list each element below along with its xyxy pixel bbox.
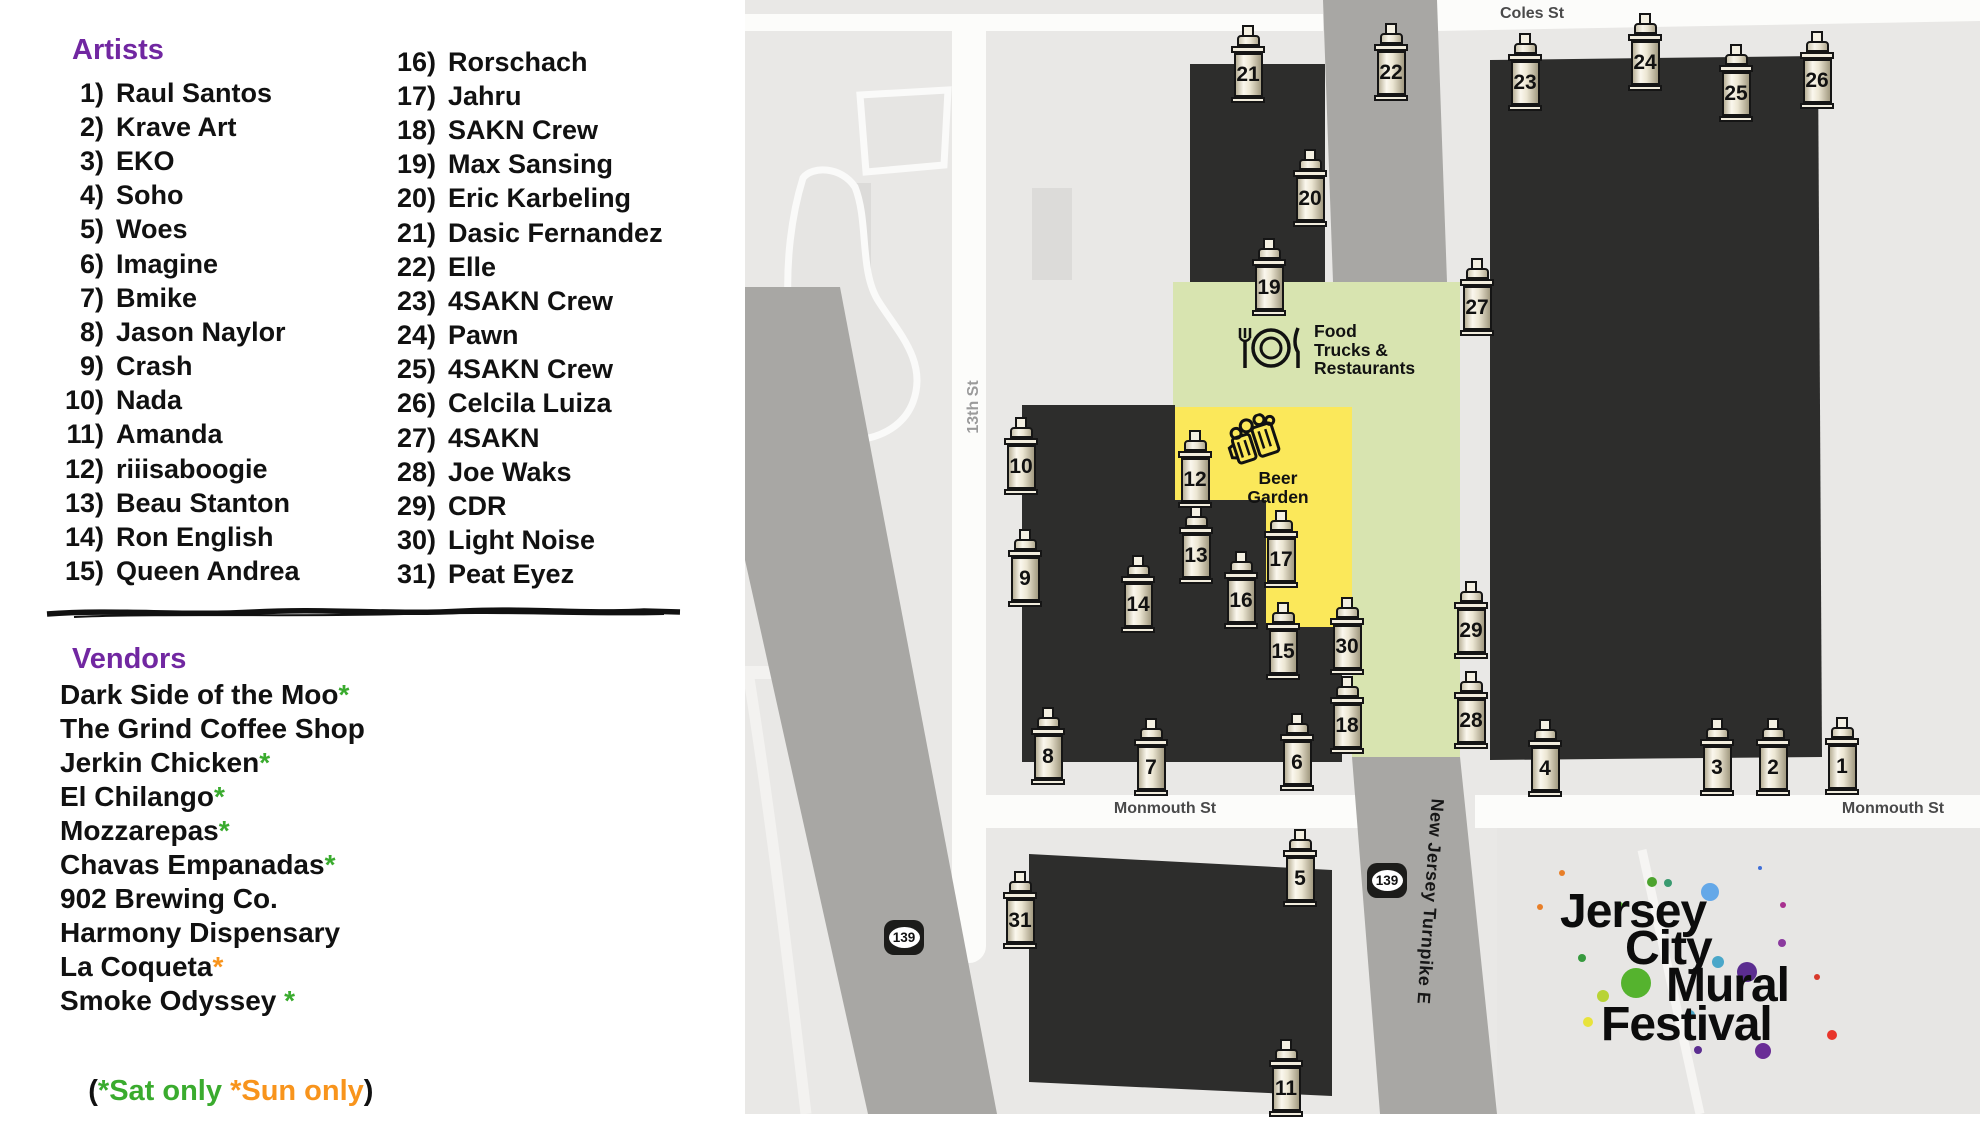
- spray-can-cap-icon: [1272, 612, 1295, 623]
- spray-can-number: 3: [1711, 756, 1723, 780]
- 13th-st-label: 13th St: [965, 347, 983, 467]
- spray-can-nozzle-icon: [1304, 149, 1316, 159]
- artist-number: 22): [378, 252, 448, 283]
- artist-name: Celcila Luiza: [448, 388, 612, 419]
- artist-name: Ron English: [116, 522, 274, 553]
- spray-can-nozzle-icon: [1014, 871, 1026, 881]
- spray-can-marker[interactable]: 28: [1452, 671, 1490, 749]
- spray-can-nozzle-icon: [1291, 713, 1303, 723]
- spray-can-rim-icon: [1330, 618, 1364, 625]
- artist-list-item: 15)Queen Andrea: [46, 555, 300, 589]
- spray-can-body: 20: [1296, 177, 1325, 221]
- route-139-badge-number: 139: [1372, 870, 1403, 891]
- artist-number: 26): [378, 388, 448, 419]
- vendor-name: El Chilango: [60, 781, 214, 813]
- artist-list-item: 28)Joe Waks: [378, 455, 663, 489]
- artist-number: 27): [378, 423, 448, 454]
- spray-can-cap-icon: [1460, 681, 1483, 692]
- spray-can-base-icon: [1031, 779, 1065, 785]
- artist-list-item: 27)4SAKN: [378, 421, 663, 455]
- artist-list-item: 6)Imagine: [46, 247, 300, 281]
- spray-can-number: 4: [1539, 757, 1551, 781]
- artist-name: Bmike: [116, 283, 197, 314]
- spray-can-body: 13: [1182, 534, 1211, 578]
- artist-number: 3): [46, 146, 116, 177]
- artist-list-item: 12)riiisaboogie: [46, 452, 300, 486]
- spray-can-base-icon: [1224, 623, 1258, 629]
- vendor-list-item: Smoke Odyssey *: [60, 984, 365, 1018]
- spray-can-rim-icon: [1800, 52, 1834, 59]
- spray-can-base-icon: [1330, 669, 1364, 675]
- divider-line: [44, 604, 684, 622]
- spray-can-marker[interactable]: 16: [1222, 551, 1260, 629]
- spray-can-cap-icon: [1185, 516, 1208, 527]
- spray-can-body: 5: [1286, 857, 1315, 901]
- spray-can-body: 9: [1011, 557, 1040, 601]
- spray-can-rim-icon: [1528, 740, 1562, 747]
- spray-can-marker[interactable]: 17: [1262, 510, 1300, 588]
- spray-can-base-icon: [1264, 582, 1298, 588]
- spray-can-cap-icon: [1286, 723, 1309, 734]
- spray-can-body: 26: [1803, 59, 1832, 103]
- artist-number: 30): [378, 525, 448, 556]
- vendor-name: La Coqueta: [60, 951, 212, 983]
- spray-can-body: 31: [1006, 899, 1035, 943]
- vendor-list-item: 902 Brewing Co.: [60, 882, 365, 916]
- spray-can-marker[interactable]: 20: [1291, 149, 1329, 227]
- vendor-name: Chavas Empanadas: [60, 849, 325, 881]
- spray-can-nozzle-icon: [1132, 555, 1144, 565]
- artist-list-item: 14)Ron English: [46, 520, 300, 554]
- artist-name: Rorschach: [448, 47, 588, 78]
- spray-can-base-icon: [1269, 1111, 1303, 1117]
- beer-garden-label-group: Beer Garden: [1226, 416, 1330, 506]
- vendor-list-item: El Chilango*: [60, 780, 365, 814]
- spray-can-body: 12: [1181, 458, 1210, 502]
- spray-can-rim-icon: [1330, 697, 1364, 704]
- spray-can-body: 27: [1463, 286, 1492, 330]
- artist-number: 1): [46, 78, 116, 109]
- spray-can-base-icon: [1003, 943, 1037, 949]
- artist-name: Soho: [116, 180, 184, 211]
- spray-can-marker[interactable]: 13: [1177, 506, 1215, 584]
- monmouth-st-label-east: Monmouth St: [1813, 800, 1973, 818]
- spray-can-nozzle-icon: [1015, 417, 1027, 427]
- spray-can-cap-icon: [1514, 43, 1537, 54]
- artist-number: 20): [378, 183, 448, 214]
- artist-list-item: 3)EKO: [46, 144, 300, 178]
- artist-name: Queen Andrea: [116, 556, 300, 587]
- spray-can-marker[interactable]: 2: [1754, 718, 1792, 796]
- spray-can-body: 25: [1722, 72, 1751, 116]
- spray-can-nozzle-icon: [1294, 829, 1306, 839]
- spray-can-nozzle-icon: [1145, 718, 1157, 728]
- artist-name: Nada: [116, 385, 182, 416]
- spray-can-nozzle-icon: [1711, 718, 1723, 728]
- schedule-note: (*Sat only *Sun only): [56, 1042, 373, 1141]
- artist-name: Light Noise: [448, 525, 595, 556]
- artist-list-item: 29)CDR: [378, 489, 663, 523]
- paint-splatter-dot: [1537, 904, 1543, 910]
- vendor-list-item: Jerkin Chicken*: [60, 746, 365, 780]
- spray-can-number: 19: [1257, 276, 1280, 300]
- artist-name: Beau Stanton: [116, 488, 290, 519]
- monmouth-st-label-west: Monmouth St: [1085, 800, 1245, 818]
- spray-can-body: 18: [1333, 704, 1362, 748]
- artist-name: Crash: [116, 351, 193, 382]
- spray-can-base-icon: [1454, 743, 1488, 749]
- spray-can-nozzle-icon: [1341, 676, 1353, 686]
- spray-can-number: 14: [1126, 593, 1149, 617]
- spray-can-rim-icon: [1283, 850, 1317, 857]
- spray-can-nozzle-icon: [1275, 510, 1287, 520]
- spray-can-nozzle-icon: [1767, 718, 1779, 728]
- spray-can-marker[interactable]: 10: [1002, 417, 1040, 495]
- spray-can-number: 17: [1269, 548, 1292, 572]
- spray-can-base-icon: [1719, 116, 1753, 122]
- spray-can-marker[interactable]: 23: [1506, 33, 1544, 111]
- spray-can-marker[interactable]: 22: [1372, 23, 1410, 101]
- artist-number: 8): [46, 317, 116, 348]
- spray-can-marker[interactable]: 27: [1458, 258, 1496, 336]
- artist-name: Eric Karbeling: [448, 183, 631, 214]
- vendor-name: 902 Brewing Co.: [60, 883, 278, 915]
- spray-can-base-icon: [1008, 601, 1042, 607]
- artist-number: 15): [46, 556, 116, 587]
- paint-splatter-dot: [1758, 866, 1762, 870]
- artist-number: 17): [378, 81, 448, 112]
- vendor-day-asterisk: *: [284, 985, 295, 1017]
- artist-name: SAKN Crew: [448, 115, 598, 146]
- paint-splatter-dot: [1780, 902, 1786, 908]
- vendor-day-asterisk: *: [259, 747, 270, 779]
- spray-can-number: 13: [1184, 544, 1207, 568]
- spray-can-number: 31: [1008, 909, 1031, 933]
- spray-can-rim-icon: [1454, 692, 1488, 699]
- spray-can-marker[interactable]: 1: [1823, 717, 1861, 795]
- spray-can-cap-icon: [1706, 728, 1729, 739]
- spray-can-cap-icon: [1460, 591, 1483, 602]
- vendors-heading: Vendors: [72, 643, 186, 676]
- spray-can-rim-icon: [1003, 892, 1037, 899]
- vendor-list-item: Mozzarepas*: [60, 814, 365, 848]
- spray-can-marker[interactable]: 18: [1328, 676, 1366, 754]
- spray-can-base-icon: [1508, 105, 1542, 111]
- artist-list-item: 19)Max Sansing: [378, 148, 663, 182]
- paint-splatter-dot: [1778, 939, 1786, 947]
- spray-can-marker[interactable]: 31: [1001, 871, 1039, 949]
- spray-can-body: 2: [1759, 746, 1788, 790]
- artist-number: 21): [378, 218, 448, 249]
- artist-name: CDR: [448, 491, 507, 522]
- artists-heading: Artists: [72, 34, 164, 67]
- artist-number: 18): [378, 115, 448, 146]
- spray-can-nozzle-icon: [1263, 238, 1275, 248]
- spray-can-rim-icon: [1178, 451, 1212, 458]
- artist-name: Peat Eyez: [448, 559, 574, 590]
- spray-can-cap-icon: [1534, 729, 1557, 740]
- spray-can-base-icon: [1528, 791, 1562, 797]
- spray-can-cap-icon: [1184, 440, 1207, 451]
- spray-can-rim-icon: [1266, 623, 1300, 630]
- spray-can-base-icon: [1231, 97, 1265, 103]
- spray-can-cap-icon: [1014, 539, 1037, 550]
- spray-can-number: 20: [1298, 187, 1321, 211]
- spray-can-nozzle-icon: [1465, 581, 1477, 591]
- route-139-badge: 139: [884, 920, 924, 955]
- artist-list-item: 8)Jason Naylor: [46, 315, 300, 349]
- paint-splatter-dot: [1578, 954, 1586, 962]
- sun-only-note: *Sun only: [230, 1075, 364, 1107]
- spray-can-nozzle-icon: [1235, 551, 1247, 561]
- vendor-list-item: Dark Side of the Moo*: [60, 678, 365, 712]
- spray-can-nozzle-icon: [1465, 671, 1477, 681]
- artist-name: 4SAKN: [448, 423, 540, 454]
- spray-can-cap-icon: [1762, 728, 1785, 739]
- vendor-day-asterisk: *: [325, 849, 336, 881]
- vendor-day-asterisk: *: [214, 781, 225, 813]
- artist-number: 14): [46, 522, 116, 553]
- spray-can-rim-icon: [1628, 34, 1662, 41]
- logo-line: Festival: [1601, 997, 1772, 1052]
- artist-number: 11): [46, 419, 116, 450]
- artist-list-item: 17)Jahru: [378, 79, 663, 113]
- paint-splatter-dot: [1583, 1017, 1593, 1027]
- spray-can-nozzle-icon: [1242, 25, 1254, 35]
- spray-can-cap-icon: [1237, 35, 1260, 46]
- artist-number: 19): [378, 149, 448, 180]
- spray-can-base-icon: [1628, 85, 1662, 91]
- spray-can-nozzle-icon: [1341, 597, 1353, 607]
- artists-list-col1: 1)Raul Santos2)Krave Art3)EKO4)Soho5)Woe…: [46, 76, 300, 589]
- spray-can-body: 14: [1124, 583, 1153, 627]
- artist-number: 31): [378, 559, 448, 590]
- artist-list-item: 1)Raul Santos: [46, 76, 300, 110]
- spray-can-body: 21: [1234, 53, 1263, 97]
- route-139-badge: 139: [1367, 863, 1407, 898]
- spray-can-cap-icon: [1127, 565, 1150, 576]
- paint-splatter-dot: [1559, 870, 1565, 876]
- spray-can-marker[interactable]: 21: [1229, 25, 1267, 103]
- spray-can-rim-icon: [1508, 54, 1542, 61]
- vendors-list: Dark Side of the Moo*The Grind Coffee Sh…: [60, 678, 365, 1018]
- artist-number: 9): [46, 351, 116, 382]
- artist-name: Jason Naylor: [116, 317, 286, 348]
- spray-can-body: 23: [1511, 61, 1540, 105]
- spray-can-base-icon: [1460, 330, 1494, 336]
- spray-can-nozzle-icon: [1280, 1039, 1292, 1049]
- spray-can-cap-icon: [1466, 268, 1489, 279]
- spray-can-marker[interactable]: 3: [1698, 718, 1736, 796]
- spray-can-nozzle-icon: [1019, 529, 1031, 539]
- artist-list-item: 7)Bmike: [46, 281, 300, 315]
- vendor-name: Smoke Odyssey: [60, 985, 284, 1017]
- spray-can-marker[interactable]: 8: [1029, 707, 1067, 785]
- spray-can-nozzle-icon: [1836, 717, 1848, 727]
- spray-can-rim-icon: [1231, 46, 1265, 53]
- spray-can-body: 11: [1272, 1067, 1301, 1111]
- spray-can-body: 16: [1227, 579, 1256, 623]
- spray-can-marker[interactable]: 26: [1798, 31, 1836, 109]
- spray-can-body: 8: [1034, 735, 1063, 779]
- spray-can-body: 1: [1828, 745, 1857, 789]
- vendor-list-item: La Coqueta*: [60, 950, 365, 984]
- spray-can-rim-icon: [1719, 65, 1753, 72]
- artist-number: 13): [46, 488, 116, 519]
- spray-can-base-icon: [1825, 789, 1859, 795]
- artist-number: 28): [378, 457, 448, 488]
- artist-name: EKO: [116, 146, 175, 177]
- vendor-name: The Grind Coffee Shop: [60, 713, 365, 745]
- spray-can-cap-icon: [1289, 839, 1312, 850]
- artist-name: Max Sansing: [448, 149, 613, 180]
- vendor-day-asterisk: *: [338, 679, 349, 711]
- spray-can-rim-icon: [1008, 550, 1042, 557]
- spray-can-number: 1: [1836, 755, 1848, 779]
- artist-list-item: 4)Soho: [46, 179, 300, 213]
- spray-can-number: 23: [1513, 71, 1536, 95]
- artist-number: 12): [46, 454, 116, 485]
- spray-can-marker[interactable]: 9: [1006, 529, 1044, 607]
- spray-can-nozzle-icon: [1189, 430, 1201, 440]
- artist-name: Imagine: [116, 249, 218, 280]
- artist-number: 10): [46, 385, 116, 416]
- spray-can-rim-icon: [1224, 572, 1258, 579]
- spray-can-marker[interactable]: 30: [1328, 597, 1366, 675]
- vendor-list-item: Chavas Empanadas*: [60, 848, 365, 882]
- spray-can-body: 6: [1283, 741, 1312, 785]
- spray-can-marker[interactable]: 15: [1264, 602, 1302, 680]
- spray-can-rim-icon: [1134, 739, 1168, 746]
- artist-name: Woes: [116, 214, 188, 245]
- artist-list-item: 13)Beau Stanton: [46, 486, 300, 520]
- spray-can-number: 12: [1183, 468, 1206, 492]
- artist-number: 7): [46, 283, 116, 314]
- spray-can-cap-icon: [1258, 248, 1281, 259]
- artist-list-item: 10)Nada: [46, 384, 300, 418]
- spray-can-cap-icon: [1010, 427, 1033, 438]
- spray-can-rim-icon: [1460, 279, 1494, 286]
- spray-can-body: 24: [1631, 41, 1660, 85]
- artist-number: 6): [46, 249, 116, 280]
- vendor-name: Harmony Dispensary: [60, 917, 340, 949]
- spray-can-base-icon: [1134, 790, 1168, 796]
- spray-can-base-icon: [1330, 748, 1364, 754]
- artist-name: Jahru: [448, 81, 522, 112]
- spray-can-body: 19: [1255, 266, 1284, 310]
- spray-can-number: 8: [1042, 745, 1054, 769]
- spray-can-rim-icon: [1454, 602, 1488, 609]
- spray-can-nozzle-icon: [1042, 707, 1054, 717]
- spray-can-cap-icon: [1634, 23, 1657, 34]
- spray-can-number: 16: [1229, 589, 1252, 613]
- food-trucks-label-group: Food Trucks & Restaurants: [1237, 322, 1415, 378]
- artist-name: 4SAKN Crew: [448, 354, 613, 385]
- sat-only-note: *Sat only: [98, 1075, 222, 1107]
- spray-can-rim-icon: [1280, 734, 1314, 741]
- artist-list-item: 23)4SAKN Crew: [378, 284, 663, 318]
- artist-number: 25): [378, 354, 448, 385]
- spray-can-number: 15: [1271, 640, 1294, 664]
- paint-splatter-dot: [1814, 974, 1820, 980]
- spray-can-marker[interactable]: 19: [1250, 238, 1288, 316]
- spray-can-marker[interactable]: 4: [1526, 719, 1564, 797]
- artist-number: 4): [46, 180, 116, 211]
- artist-list-item: 2)Krave Art: [46, 110, 300, 144]
- spray-can-base-icon: [1266, 674, 1300, 680]
- artist-list-item: 18)SAKN Crew: [378, 113, 663, 147]
- spray-can-marker[interactable]: 24: [1626, 13, 1664, 91]
- spray-can-base-icon: [1293, 221, 1327, 227]
- spray-can-number: 22: [1379, 61, 1402, 85]
- artist-list-item: 16)Rorschach: [378, 45, 663, 79]
- spray-can-rim-icon: [1004, 438, 1038, 445]
- spray-can-rim-icon: [1264, 531, 1298, 538]
- spray-can-marker[interactable]: 12: [1176, 430, 1214, 508]
- vendor-day-asterisk: *: [219, 815, 230, 847]
- spray-can-marker[interactable]: 7: [1132, 718, 1170, 796]
- spray-can-base-icon: [1700, 790, 1734, 796]
- coles-st-label: Coles St: [1500, 5, 1564, 23]
- spray-can-number: 11: [1275, 1077, 1297, 1101]
- spray-can-body: 4: [1531, 747, 1560, 791]
- spray-can-number: 21: [1236, 63, 1259, 87]
- spray-can-base-icon: [1800, 103, 1834, 109]
- vendor-day-asterisk: *: [212, 951, 223, 983]
- spray-can-cap-icon: [1380, 33, 1403, 44]
- artist-name: Raul Santos: [116, 78, 272, 109]
- spray-can-body: 10: [1007, 445, 1036, 489]
- spray-can-nozzle-icon: [1730, 44, 1742, 54]
- artist-number: 2): [46, 112, 116, 143]
- vendor-list-item: Harmony Dispensary: [60, 916, 365, 950]
- vendor-list-item: The Grind Coffee Shop: [60, 712, 365, 746]
- spray-can-cap-icon: [1230, 561, 1253, 572]
- spray-can-marker[interactable]: 6: [1278, 713, 1316, 791]
- spray-can-base-icon: [1283, 901, 1317, 907]
- spray-can-nozzle-icon: [1385, 23, 1397, 33]
- spray-can-body: 7: [1137, 746, 1166, 790]
- artist-name: 4SAKN Crew: [448, 286, 613, 317]
- paint-splatter-dot: [1827, 1030, 1837, 1040]
- artist-name: riiisaboogie: [116, 454, 268, 485]
- spray-can-marker[interactable]: 29: [1452, 581, 1490, 659]
- spray-can-rim-icon: [1252, 259, 1286, 266]
- spray-can-cap-icon: [1037, 717, 1060, 728]
- spray-can-body: 3: [1703, 746, 1732, 790]
- spray-can-nozzle-icon: [1471, 258, 1483, 268]
- spray-can-marker[interactable]: 11: [1267, 1039, 1305, 1117]
- artist-list-item: 22)Elle: [378, 250, 663, 284]
- spray-can-nozzle-icon: [1639, 13, 1651, 23]
- artists-list-col2: 16)Rorschach17)Jahru18)SAKN Crew19)Max S…: [378, 45, 663, 592]
- spray-can-number: 9: [1019, 567, 1031, 591]
- spray-can-cap-icon: [1009, 881, 1032, 892]
- vendor-name: Dark Side of the Moo: [60, 679, 338, 711]
- artist-number: 16): [378, 47, 448, 78]
- spray-can-marker[interactable]: 25: [1717, 44, 1755, 122]
- spray-can-marker[interactable]: 14: [1119, 555, 1157, 633]
- artist-list-item: 31)Peat Eyez: [378, 558, 663, 592]
- spray-can-rim-icon: [1756, 739, 1790, 746]
- park-outline: [860, 90, 948, 172]
- artist-number: 23): [378, 286, 448, 317]
- spray-can-marker[interactable]: 5: [1281, 829, 1319, 907]
- artist-name: Joe Waks: [448, 457, 572, 488]
- artist-name: Pawn: [448, 320, 519, 351]
- artist-list-item: 9)Crash: [46, 350, 300, 384]
- spray-can-base-icon: [1004, 489, 1038, 495]
